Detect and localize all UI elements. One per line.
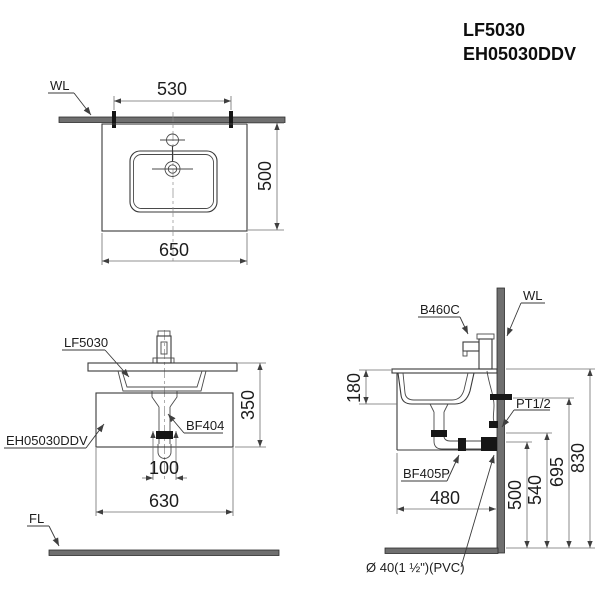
basin-inner-outline: [134, 155, 214, 209]
dim-540: 540: [525, 475, 545, 505]
trap-plumbing: [430, 404, 497, 451]
dim-480: 480: [430, 488, 460, 508]
drain-model-label: BF404: [186, 418, 224, 433]
dim-100: 100: [149, 458, 179, 478]
wall-bar-side: [497, 288, 505, 553]
basin-front-inner: [122, 371, 202, 387]
cabinet-model-leader: [86, 424, 104, 448]
dim-350: 350: [238, 390, 258, 420]
wall-line-leader: [74, 93, 91, 115]
basin-front-outer: [118, 371, 206, 391]
wall-bar: [59, 117, 285, 123]
wall-line-label: WL: [50, 78, 70, 93]
dim-530: 530: [157, 79, 187, 99]
wall-line-leader-side: [507, 303, 521, 336]
technical-drawing-page: LF5030 EH05030DDV 530 650 500 WL: [0, 0, 600, 600]
top-view: 530 650 500 WL: [48, 78, 285, 265]
front-view: 100 630 350 LF5030 EH05030DDV BF404 FL: [4, 330, 279, 556]
hanger-bracket-left: [112, 111, 116, 128]
supply-valve: [489, 421, 498, 428]
dim-695: 695: [547, 457, 567, 487]
basin-outline: [130, 151, 217, 212]
cabinet-model-label: EH05030DDV: [6, 433, 88, 448]
title-model-2: EH05030DDV: [463, 44, 576, 64]
dim-500: 500: [505, 480, 525, 510]
supply-thread-label: PT1/2: [516, 396, 551, 411]
wall-outlet-flange: [481, 437, 497, 451]
basin-model-label: LF5030: [64, 335, 108, 350]
floor-line-label: FL: [29, 511, 44, 526]
faucet-model-leader: [460, 317, 468, 334]
drawing-canvas: LF5030 EH05030DDV 530 650 500 WL: [0, 0, 600, 600]
faucet-side: [463, 334, 494, 369]
drain-coupling-front: [156, 431, 173, 439]
faucet-model-label: B460C: [420, 302, 460, 317]
wall-line-label-side: WL: [523, 288, 543, 303]
side-view: 180 480 500 540 695 830 B460C WL PT1/2 B…: [344, 288, 595, 575]
dim-830: 830: [568, 443, 588, 473]
faucet-front: [153, 331, 174, 363]
outlet-size-label: Ø 40(1 ½")(PVC): [366, 560, 465, 575]
supply-stub: [490, 394, 512, 400]
title-model-1: LF5030: [463, 20, 525, 40]
dim-180: 180: [344, 373, 364, 403]
basin-side-inner: [403, 373, 468, 400]
hanger-bracket-right: [229, 111, 233, 128]
floor-line-leader: [49, 526, 59, 546]
floor-bar-side: [385, 548, 498, 554]
dim-650: 650: [159, 240, 189, 260]
trap-nut: [458, 438, 466, 451]
countertop-side: [392, 369, 497, 373]
title-block: LF5030 EH05030DDV: [463, 20, 576, 64]
trap-coupling: [431, 430, 447, 437]
countertop-front: [88, 363, 237, 371]
trap-model-label: BF405P: [403, 466, 450, 481]
dim-630: 630: [149, 491, 179, 511]
dim-500-top: 500: [255, 161, 275, 191]
floor-bar-front: [49, 550, 279, 556]
